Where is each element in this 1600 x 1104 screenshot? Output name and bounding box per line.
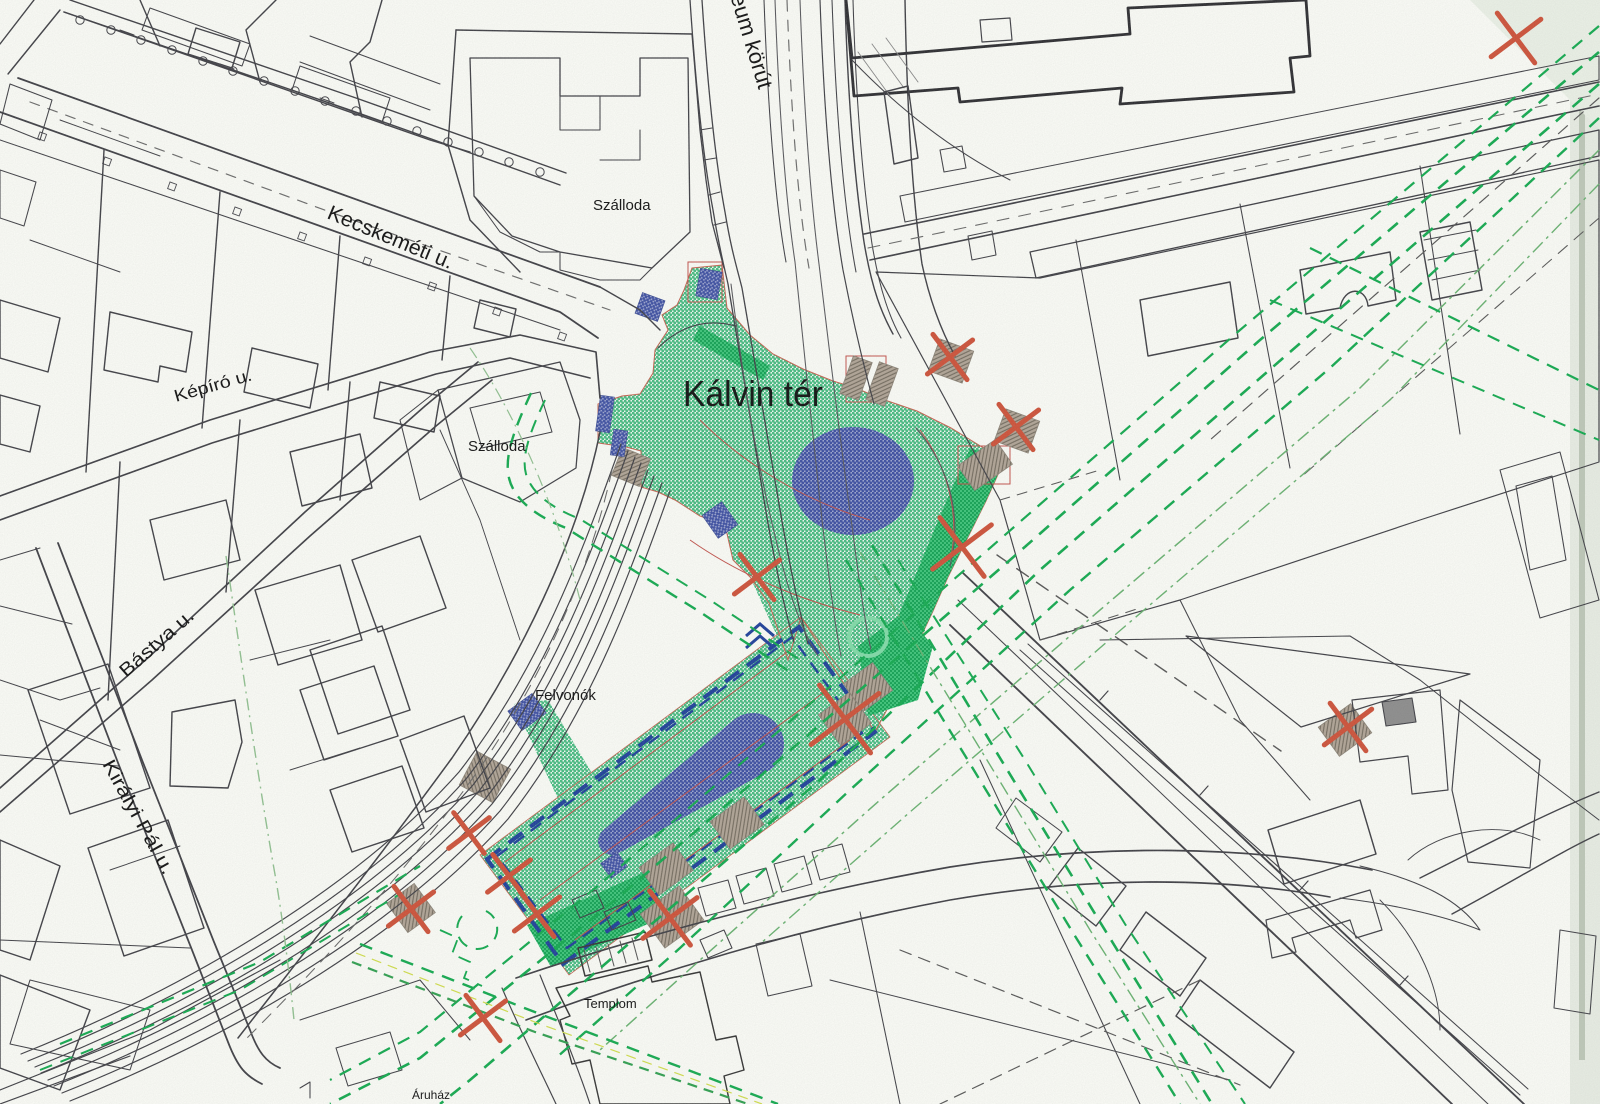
svg-text:Áruház: Áruház — [412, 1087, 450, 1102]
svg-text:Felvonók: Felvonók — [535, 687, 596, 704]
svg-text:Szálloda: Szálloda — [468, 438, 526, 455]
svg-text:Szálloda: Szálloda — [593, 197, 651, 214]
svg-text:Templom: Templom — [584, 996, 637, 1011]
svg-text:Kálvin tér: Kálvin tér — [683, 373, 823, 414]
